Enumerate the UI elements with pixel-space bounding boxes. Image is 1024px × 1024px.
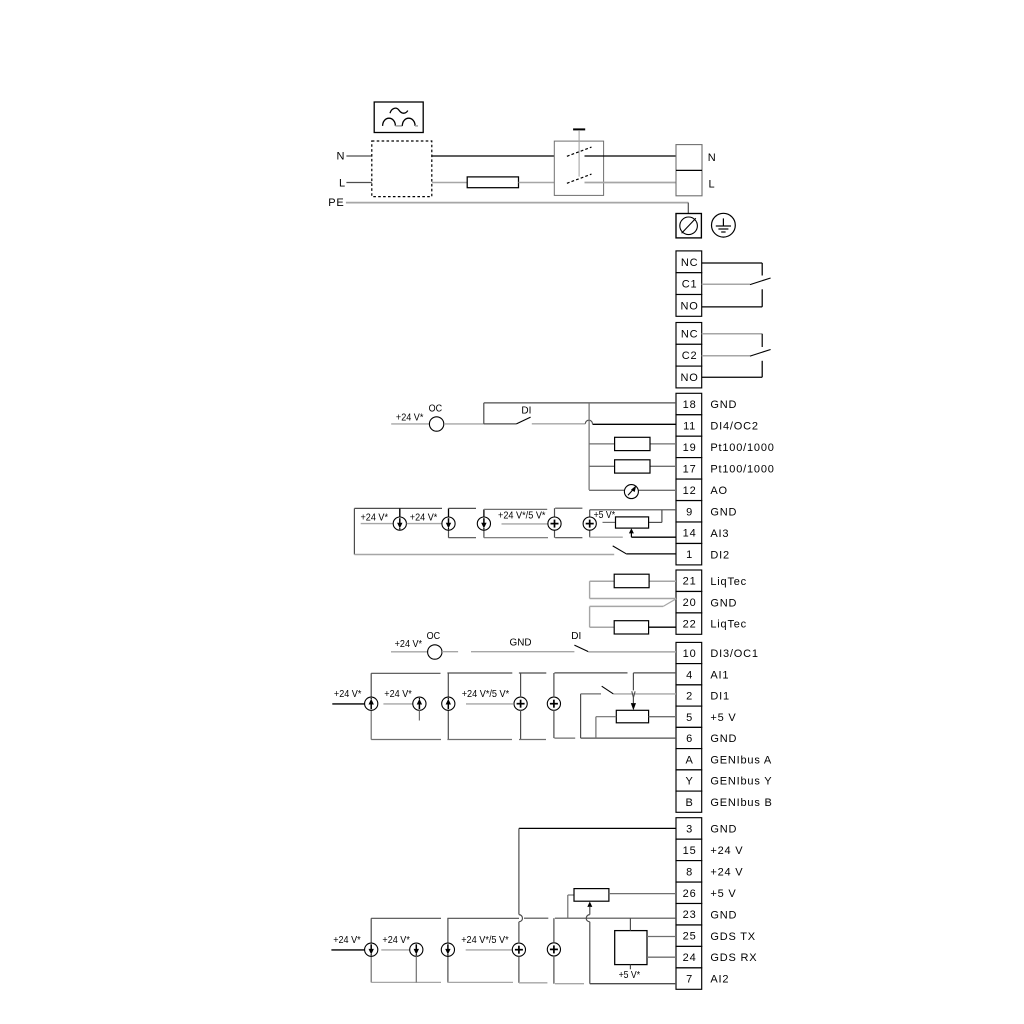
svg-text:DI: DI: [521, 405, 531, 417]
svg-text:DI1: DI1: [710, 691, 730, 703]
svg-text:8: 8: [686, 866, 693, 878]
svg-text:GND: GND: [710, 597, 737, 609]
svg-text:+5 V: +5 V: [710, 888, 736, 900]
svg-text:AI3: AI3: [710, 528, 729, 540]
svg-text:GENIbus B: GENIbus B: [710, 797, 772, 809]
svg-text:OC: OC: [427, 630, 441, 642]
svg-text:21: 21: [683, 576, 697, 588]
svg-text:AO: AO: [710, 485, 728, 497]
svg-text:+5 V*: +5 V*: [594, 509, 616, 521]
svg-text:L: L: [339, 178, 346, 190]
svg-text:N: N: [337, 151, 346, 163]
svg-text:1: 1: [686, 549, 693, 561]
svg-text:GENIbus A: GENIbus A: [710, 754, 772, 766]
svg-text:+24 V*: +24 V*: [334, 688, 362, 700]
svg-text:DI2: DI2: [710, 549, 730, 561]
svg-text:NC: NC: [681, 257, 699, 269]
svg-text:GND: GND: [510, 637, 532, 649]
svg-text:GND: GND: [710, 506, 737, 518]
svg-text:22: 22: [683, 619, 697, 631]
svg-text:7: 7: [686, 974, 693, 986]
svg-text:9: 9: [686, 506, 693, 518]
svg-text:GDS RX: GDS RX: [710, 952, 757, 964]
svg-text:NO: NO: [681, 300, 699, 312]
svg-text:17: 17: [683, 463, 697, 475]
svg-text:AI2: AI2: [710, 974, 729, 986]
svg-text:+24 V*/5 V*: +24 V*/5 V*: [498, 510, 546, 522]
svg-text:L: L: [709, 178, 716, 190]
svg-text:10: 10: [683, 648, 697, 660]
svg-text:25: 25: [683, 931, 697, 943]
svg-text:+24 V*: +24 V*: [382, 934, 410, 946]
svg-text:A: A: [686, 754, 694, 766]
svg-text:6: 6: [686, 733, 693, 745]
svg-text:+24 V*: +24 V*: [384, 688, 412, 700]
svg-text:NC: NC: [681, 328, 699, 340]
svg-text:OC: OC: [429, 402, 443, 414]
svg-text:DI4/OC2: DI4/OC2: [710, 421, 758, 433]
svg-text:12: 12: [683, 485, 697, 497]
svg-text:C1: C1: [682, 279, 698, 291]
svg-text:Pt100/1000: Pt100/1000: [710, 442, 774, 454]
svg-text:DI3/OC1: DI3/OC1: [710, 648, 758, 660]
svg-text:+24 V*: +24 V*: [361, 512, 389, 524]
svg-text:+24 V*/5 V*: +24 V*/5 V*: [461, 934, 509, 946]
svg-text:GND: GND: [710, 733, 737, 745]
svg-text:GND: GND: [710, 824, 737, 836]
svg-text:5: 5: [686, 712, 693, 724]
svg-text:+5 V*: +5 V*: [619, 969, 641, 981]
svg-text:+24 V*: +24 V*: [333, 934, 361, 946]
svg-text:2: 2: [686, 691, 693, 703]
svg-text:N: N: [708, 152, 717, 164]
svg-text:LiqTec: LiqTec: [710, 576, 747, 588]
svg-text:4: 4: [686, 669, 693, 681]
svg-text:+24 V*: +24 V*: [410, 512, 438, 524]
svg-text:+5 V: +5 V: [710, 712, 736, 724]
svg-text:DI: DI: [571, 630, 581, 642]
svg-text:14: 14: [683, 528, 697, 540]
svg-text:15: 15: [683, 845, 697, 857]
svg-text:C2: C2: [682, 350, 698, 362]
svg-text:NO: NO: [681, 372, 699, 384]
svg-text:+24 V: +24 V: [710, 845, 743, 857]
svg-text:B: B: [686, 797, 694, 809]
svg-text:18: 18: [683, 399, 697, 411]
svg-text:11: 11: [683, 421, 696, 433]
svg-text:+24 V*: +24 V*: [396, 411, 424, 423]
svg-text:Pt100/1000: Pt100/1000: [710, 464, 774, 476]
svg-text:LiqTec: LiqTec: [710, 619, 747, 631]
svg-text:20: 20: [683, 597, 697, 609]
svg-text:24: 24: [683, 952, 697, 964]
svg-text:+24 V: +24 V: [710, 866, 743, 878]
svg-text:23: 23: [683, 909, 697, 921]
svg-text:Y: Y: [686, 776, 694, 788]
svg-text:PE: PE: [328, 197, 344, 209]
svg-text:19: 19: [683, 442, 697, 454]
svg-text:+24 V*/5 V*: +24 V*/5 V*: [462, 688, 510, 700]
svg-text:AI1: AI1: [710, 669, 729, 681]
svg-text:GND: GND: [710, 399, 737, 411]
svg-text:3: 3: [686, 823, 693, 835]
svg-text:26: 26: [683, 888, 697, 900]
svg-text:GND: GND: [710, 909, 737, 921]
svg-text:+24 V*: +24 V*: [395, 638, 423, 650]
svg-text:GENIbus Y: GENIbus Y: [710, 776, 772, 788]
svg-text:GDS TX: GDS TX: [710, 931, 756, 943]
